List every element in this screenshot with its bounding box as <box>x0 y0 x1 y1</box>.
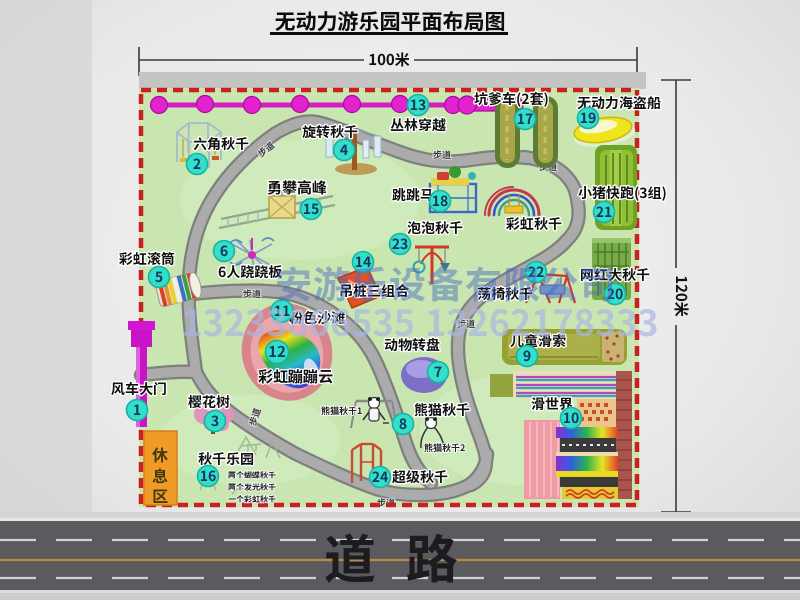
svg-text:六角秋千: 六角秋千 <box>193 134 249 154</box>
svg-text:风车大门: 风车大门 <box>111 379 167 399</box>
svg-text:熊猫秋千: 熊猫秋千 <box>414 400 470 420</box>
svg-text:无动力游乐园平面布局图: 无动力游乐园平面布局图 <box>275 6 506 36</box>
svg-text:彩虹蹦蹦云: 彩虹蹦蹦云 <box>258 366 333 387</box>
svg-text:坑爹车(2套): 坑爹车(2套) <box>474 89 549 109</box>
svg-text:樱花树: 樱花树 <box>188 392 230 412</box>
svg-text:6人跷跷板: 6人跷跷板 <box>218 262 282 282</box>
svg-text:彩虹秋千: 彩虹秋千 <box>505 214 562 234</box>
svg-text:彩虹滚筒: 彩虹滚筒 <box>118 249 175 269</box>
svg-text:丛林穿越: 丛林穿越 <box>390 115 446 135</box>
svg-text:23: 23 <box>392 234 409 254</box>
svg-text:一个彩虹秋千: 一个彩虹秋千 <box>228 494 276 505</box>
svg-text:4: 4 <box>340 140 348 160</box>
svg-text:熊猫秋千2: 熊猫秋千2 <box>424 441 465 454</box>
svg-text:跳跳马: 跳跳马 <box>392 185 434 205</box>
svg-text:区: 区 <box>152 483 168 507</box>
svg-text:超级秋千: 超级秋千 <box>392 467 448 487</box>
svg-text:3: 3 <box>211 411 219 431</box>
svg-text:6: 6 <box>220 241 228 261</box>
svg-text:19: 19 <box>580 108 597 128</box>
svg-text:小猪快跑(3组): 小猪快跑(3组) <box>578 183 667 203</box>
svg-text:16: 16 <box>200 466 217 486</box>
svg-text:10: 10 <box>563 408 580 428</box>
svg-text:15: 15 <box>303 199 320 219</box>
svg-text:1: 1 <box>133 400 141 420</box>
svg-text:21: 21 <box>596 202 613 222</box>
svg-text:13: 13 <box>410 95 427 115</box>
svg-text:两个蝴蝶秋千: 两个蝴蝶秋千 <box>228 470 276 481</box>
svg-text:5: 5 <box>155 267 163 287</box>
svg-text:24: 24 <box>372 467 389 487</box>
svg-text:120米: 120米 <box>671 275 692 317</box>
svg-text:100米: 100米 <box>368 49 410 70</box>
svg-text:步道: 步道 <box>433 148 451 161</box>
svg-text:13233806535 13262178333: 13233806535 13262178333 <box>181 295 658 347</box>
svg-text:两个发光秋千: 两个发光秋千 <box>228 482 276 493</box>
svg-text:17: 17 <box>517 109 534 129</box>
svg-text:泡泡秋千: 泡泡秋千 <box>407 218 463 238</box>
svg-text:勇攀高峰: 勇攀高峰 <box>267 177 327 198</box>
svg-text:2: 2 <box>193 154 201 174</box>
svg-text:道路: 道路 <box>324 518 488 593</box>
svg-text:8: 8 <box>399 414 407 434</box>
svg-text:旋转秋千: 旋转秋千 <box>302 122 358 142</box>
svg-text:7: 7 <box>434 362 442 382</box>
svg-text:18: 18 <box>432 191 449 211</box>
svg-text:9: 9 <box>523 346 531 366</box>
svg-text:熊猫秋千1: 熊猫秋千1 <box>321 404 362 417</box>
